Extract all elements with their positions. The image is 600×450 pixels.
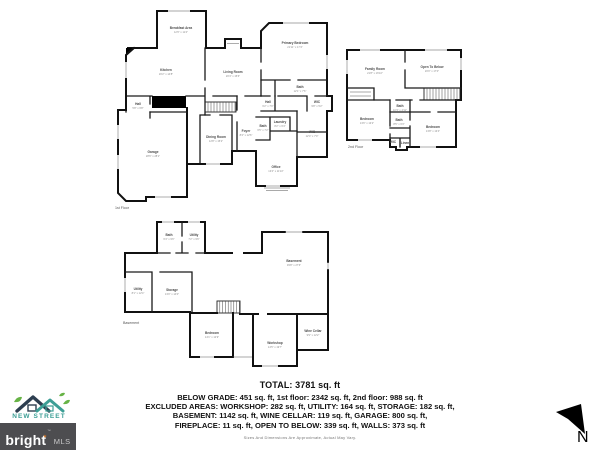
room-label: Hall [135,102,141,106]
second-floor-plan: Family Room21'8" x 16'10"Open To Below20… [346,49,463,151]
basement-stairs [217,301,240,313]
room-label: Utility [190,233,199,237]
room-label: Bath [395,118,402,122]
room-label: Living Room [223,70,242,74]
room-dimensions: 13'4" x 11'10" [268,169,284,173]
room-label: Bath [396,104,403,108]
room-dimensions: 14'1" x 12'9" [205,335,219,339]
room-dimensions: 7'2" x 9'6" [188,237,199,241]
room-dimensions: 8'5" x 6'3" [393,122,404,126]
room-dimensions: 12'1" x 7'6" [294,89,307,93]
summary-line-1: BELOW GRADE: 451 sq. ft, 1st floor: 2342… [0,393,600,402]
room-label: Hall [265,100,271,104]
room-label: Laundry [274,120,287,124]
room-label: Open To Below [421,65,444,69]
room-dimensions: 20'4" x 15'6" [226,74,240,78]
room-label: WIC [314,100,321,104]
disclaimer: Sizes And Dimensions Are Approximate, Ac… [0,435,600,440]
room-dimensions: 8'4" x 12'6" [240,133,253,137]
fireplace [152,96,186,108]
room-label: Bath [165,233,172,237]
room-dimensions: 9'9" x 12'2" [307,333,320,337]
summary-line-4: FIREPLACE: 11 sq. ft, OPEN TO BELOW: 339… [0,421,600,430]
room-label: Foyer [242,129,251,133]
floor-name-label: Basement [123,321,139,325]
bright-mls-banner: bright✶ ™ MLS [0,423,76,450]
trademark-symbol: ™ [47,429,51,433]
flame-icon: ✶ [43,431,47,443]
room-label: Storage [166,288,178,292]
bright-wordmark: bright✶ [5,434,46,446]
room-dimensions: 20'2" x 14'8" [159,72,173,76]
floor-name-label: 1st Floor [115,206,130,210]
room-label: Primary Bedroom [282,41,309,45]
room-label: Office [271,165,280,169]
area-summary: TOTAL: 3781 sq. ft BELOW GRADE: 451 sq. … [0,380,600,440]
room-dimensions: 14'5" x 19'7" [268,345,282,349]
room-label: Basement [286,259,302,263]
room-label: Bath [259,124,266,128]
summary-line-2: EXCLUDED AREAS: WORKSHOP: 282 sq. ft, UT… [0,402,600,411]
room-label: WIC [390,140,397,144]
total-area: TOTAL: 3781 sq. ft [0,380,600,390]
room-label: Bedroom [205,331,219,335]
room-label: Family Room [365,67,385,71]
room-label: Linen [401,141,410,145]
first-floor-plan: Breakfast Area12'6" x 11'4"Kitchen20'2" … [115,10,332,211]
room-label: Bedroom [426,125,440,129]
room-dimensions: 5'8" x 6'8" [132,106,143,110]
room-dimensions: 13'6" x 13'2" [360,121,374,125]
room-dimensions: 21'11" x 17'4" [287,45,303,49]
mls-suffix: MLS [54,437,71,446]
summary-line-3: BASEMENT: 1142 sq. ft, WINE CELLAR: 119 … [0,411,600,420]
room-dimensions: 6'4" x 9'6" [163,237,174,241]
floorplan-sheet: { "summary": { "total": "TOTAL: 3781 sq.… [0,0,600,450]
room-label: WIC [309,130,316,134]
room-dimensions: 20'0" x 17'0" [425,69,439,73]
second-floor-stairs [424,88,460,100]
room-label: Utility [134,287,143,291]
room-dimensions: 12'4" x 7'0" [306,134,319,138]
room-dimensions: 13'8" x 13'4" [426,129,440,133]
room-dimensions: 8'2" x 6'4" [274,124,285,128]
room-label: Bath [296,85,303,89]
room-dimensions: 21'8" x 16'10" [367,71,383,75]
room-label: Kitchen [160,68,172,72]
room-dimensions: 12'6" x 11'4" [174,30,188,34]
room-dimensions: 9'8" x 5'2" [311,104,322,108]
room-label: Breakfast Area [170,26,193,30]
room-dimensions: 8'1" x 12'4" [132,291,145,295]
room-dimensions: 28'6" x 28'1" [146,154,160,158]
leaf-icon [14,393,70,404]
room-label: Dining Room [206,135,226,139]
room-label: Bedroom [360,117,374,121]
room-dimensions: 10'3" x 4'11" [393,108,407,112]
room-label: Wine Cellar [304,329,322,333]
room-label: Workshop [267,341,283,345]
room-dimensions: 12'8" x 15'2" [209,139,223,143]
first-floor-stairs [205,102,236,112]
room-dimensions: 6'2" x 7'0" [262,104,273,108]
floor-name-label: 2nd Floor [348,145,364,149]
company-name: NEW STREET [0,413,78,420]
basement-plan: Bath6'4" x 9'6"Utility7'2" x 9'6"Basemen… [123,221,328,368]
room-dimensions: 13'0" x 14'0" [165,292,179,296]
room-dimensions: 6'5" x 7'2" [257,128,268,132]
room-dimensions: 39'8" x 27'6" [287,263,301,267]
room-label: Garage [148,150,159,154]
